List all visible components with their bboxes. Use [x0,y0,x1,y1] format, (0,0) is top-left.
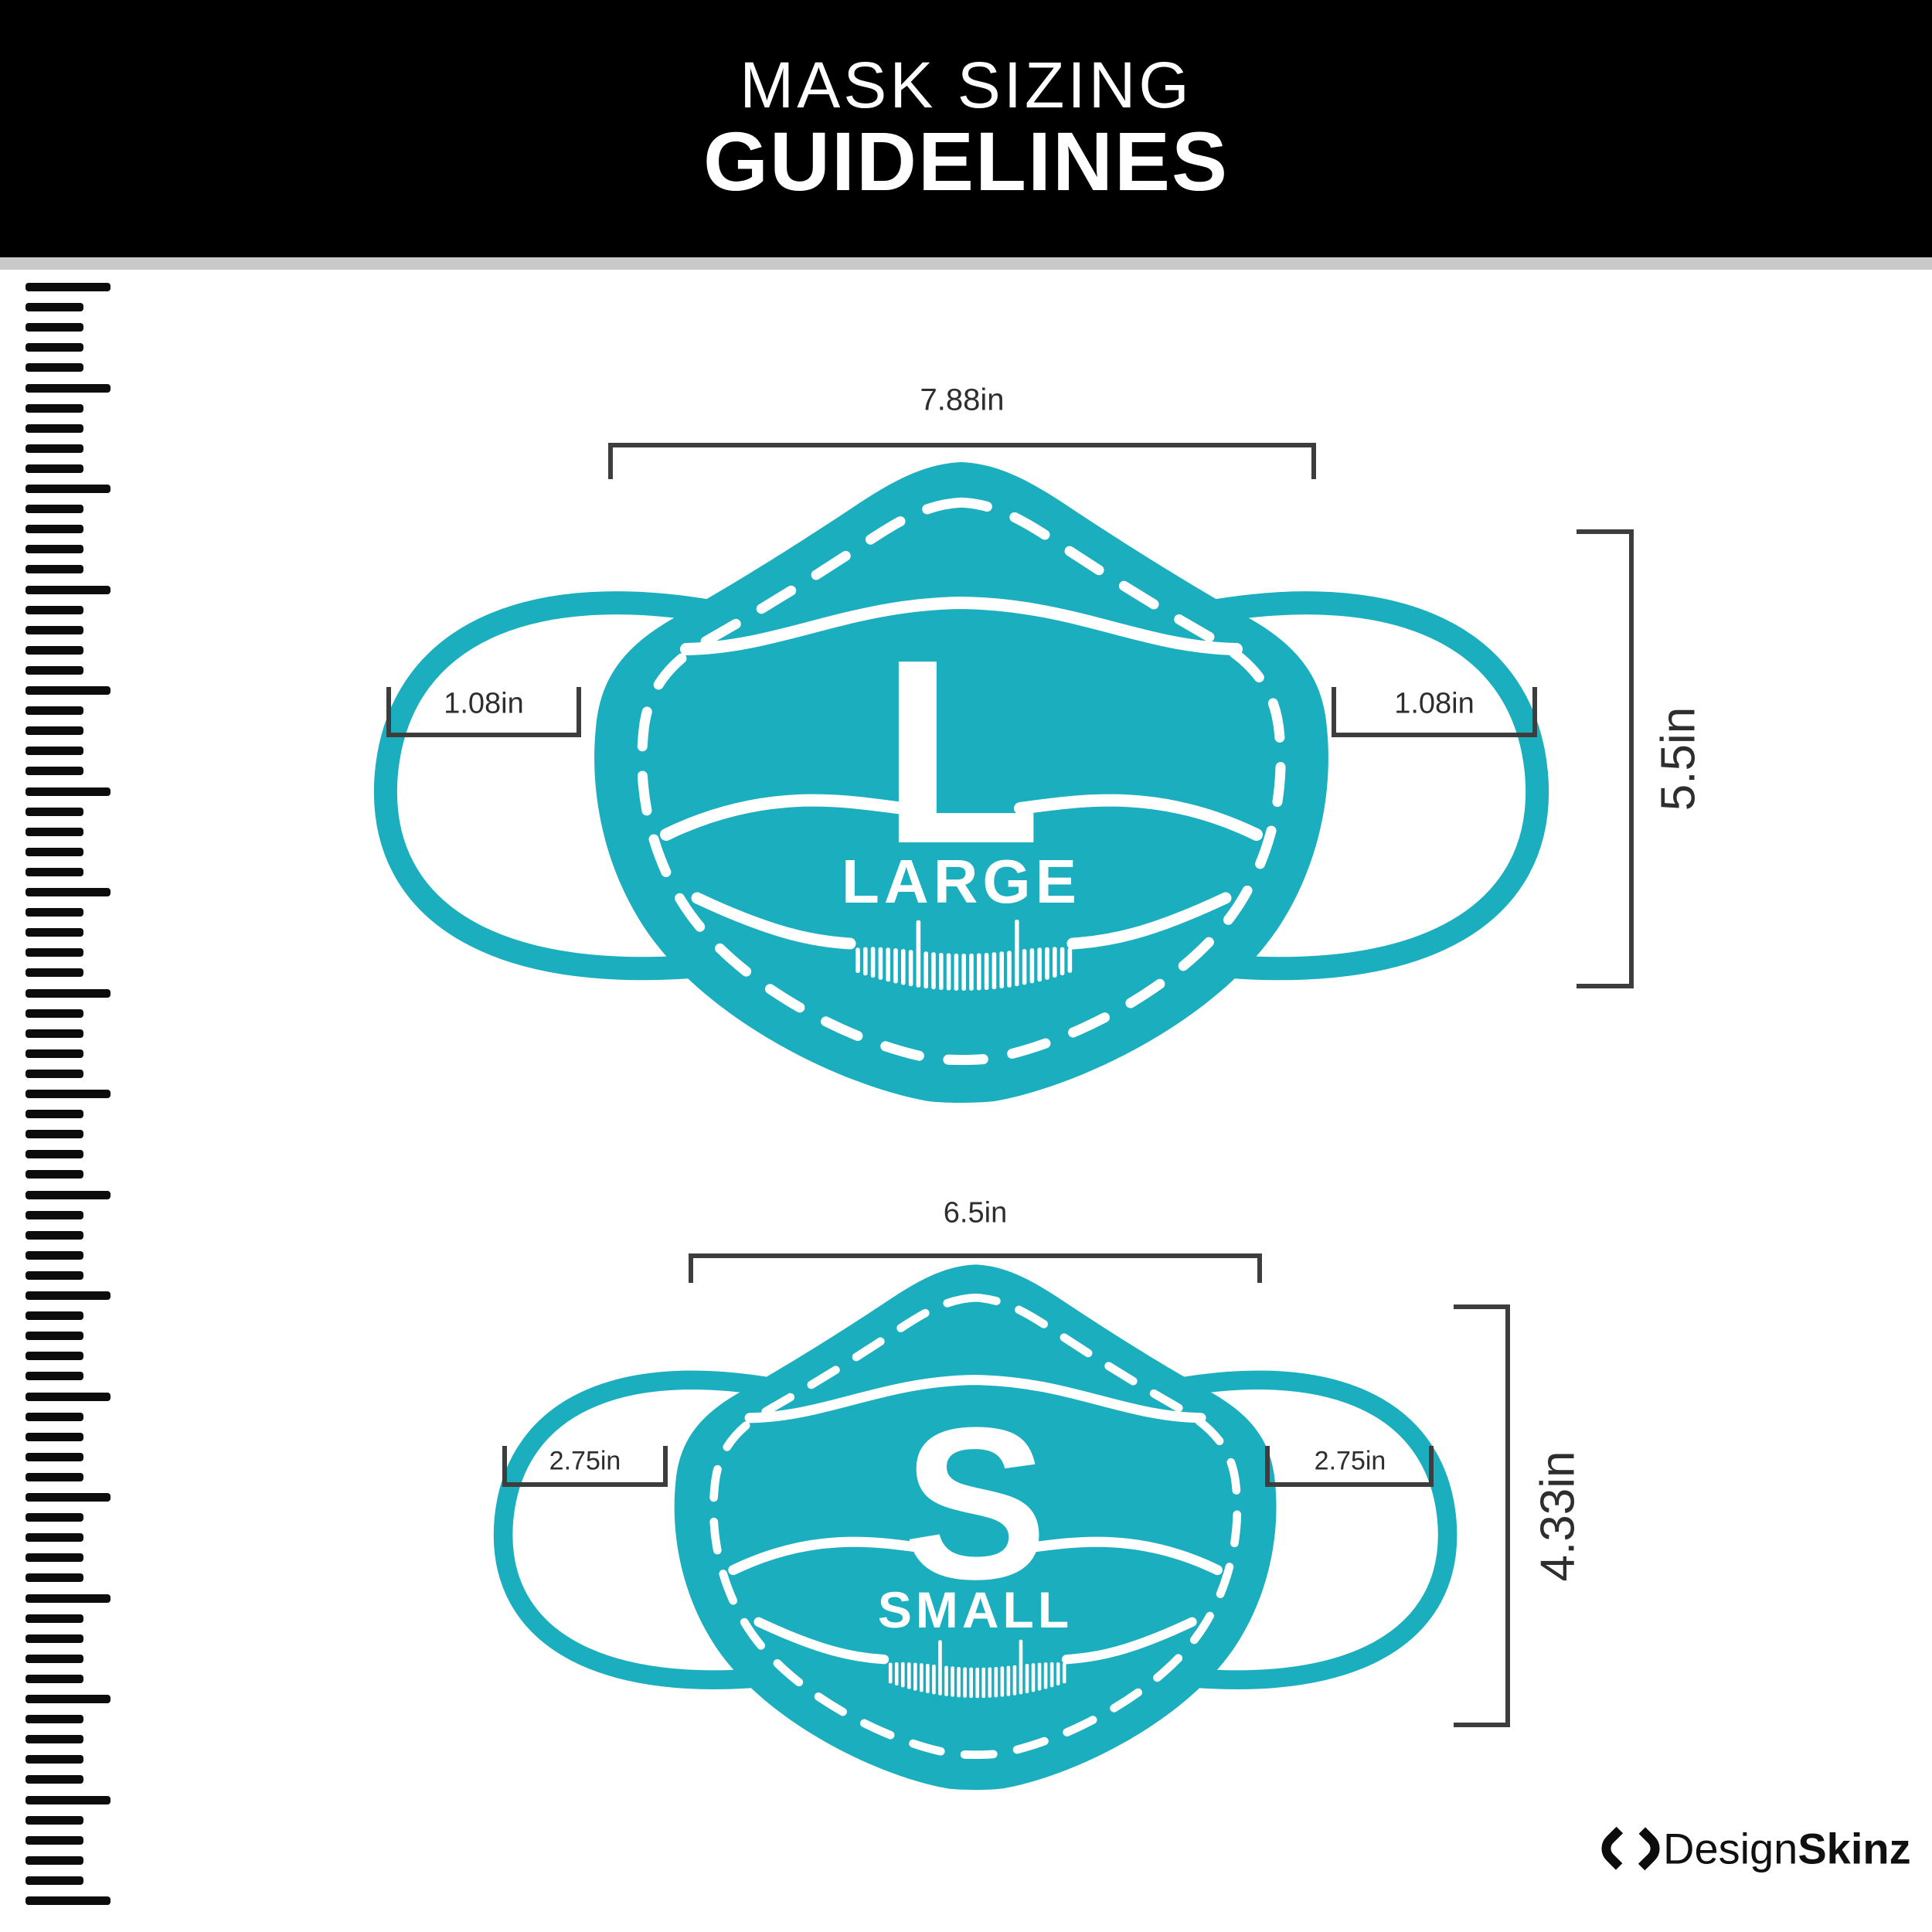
large-right-ear-label: 1.08in [1394,688,1475,721]
tape-mark-bar [1068,948,1073,973]
large-left-ear-label: 1.08in [444,688,524,721]
tape-mark-bar [939,953,944,990]
tape-mark-bar [863,947,868,976]
small-left-ear-label: 2.75in [549,1447,621,1477]
tape-mark-bar [999,951,1004,988]
small-height-label: 4.33in [1531,1451,1586,1582]
large-mask-size-name: LARGE [842,847,1081,916]
tape-mark-bar [1030,948,1035,983]
mask-diagram-canvas: L LARGE S SMALL [0,0,1932,1932]
tape-mark-bar [1007,951,1012,988]
large-height-bracket [1577,532,1631,986]
tape-mark-bar [1022,949,1027,985]
tape-mark-bar [985,953,989,990]
tape-mark-bar [901,949,906,985]
tape-mark-bar [977,954,981,991]
tape-mark-bar [871,947,876,978]
tape-mark-bar [1015,920,1019,986]
small-height-bracket [1454,1307,1508,1725]
tape-mark-bar [917,920,921,988]
designskinz-diamond-icon [1601,1819,1660,1878]
tape-mark-bar [1060,947,1065,975]
tape-mark-bar [947,954,951,991]
tape-mark-bar [1045,947,1049,980]
large-height-label: 5.5in [1651,707,1706,811]
tape-mark-bar [886,947,890,981]
tape-mark-bar [954,954,959,991]
tape-mark-bar [969,954,974,991]
tape-mark-bar [909,950,913,986]
large-width-label: 7.88in [920,383,1005,418]
tape-mark-bar [1037,947,1042,981]
brand-logo-text: DesignSkinz [1663,1824,1911,1874]
tape-mark-bar [931,952,936,989]
small-right-ear-label: 2.75in [1315,1447,1386,1477]
tape-mark-bar [855,947,860,973]
brand-name-regular: Design [1663,1825,1798,1873]
tape-mark-bar [1053,947,1057,978]
small-mask-size-name: SMALL [878,1581,1073,1638]
tape-mark-bar [961,954,966,991]
brand-name-bold: Skinz [1798,1825,1910,1873]
tape-mark-bar [879,947,883,980]
tape-mark-bar [992,952,997,989]
tape-mark-bar [893,948,898,983]
tape-mark-bar [923,951,928,988]
small-width-label: 6.5in [944,1197,1007,1230]
